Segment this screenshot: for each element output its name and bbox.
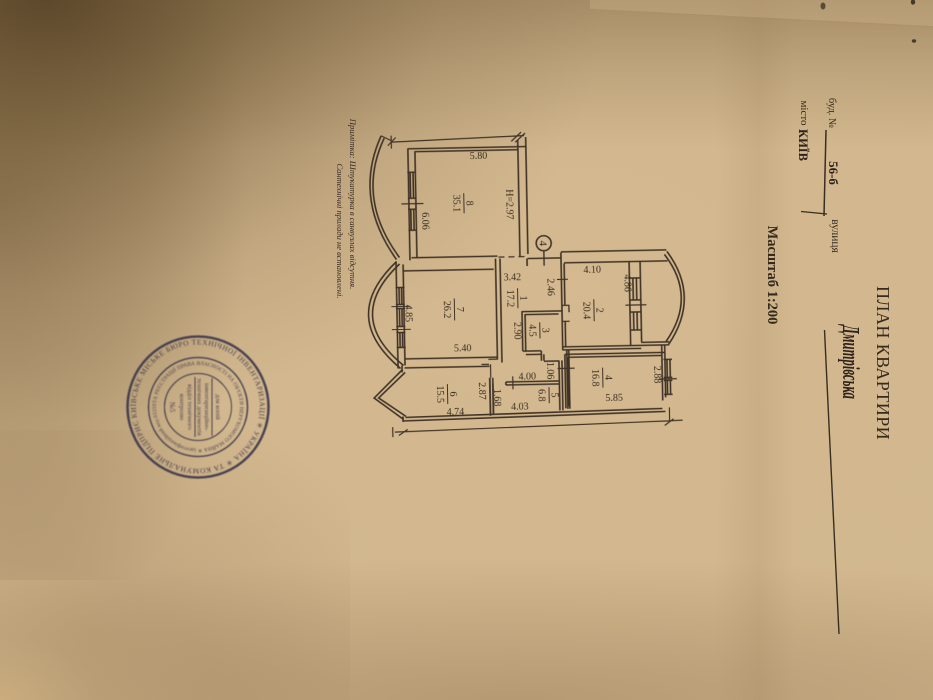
svg-text:7: 7: [454, 307, 465, 312]
svg-text:4.10: 4.10: [583, 265, 601, 276]
svg-text:1.06: 1.06: [544, 362, 555, 380]
svg-text:Сантехнічні прилади не встанов: Сантехнічні прилади не встановлені.: [335, 163, 345, 298]
svg-text:4.03: 4.03: [511, 402, 529, 413]
svg-text:буд. №: буд. №: [826, 98, 837, 128]
svg-text:20.4: 20.4: [580, 302, 591, 320]
svg-text:Н=2.97: Н=2.97: [503, 189, 515, 220]
svg-text:Масштаб 1:200: Масштаб 1:200: [764, 226, 780, 325]
svg-text:4.74: 4.74: [447, 407, 465, 418]
svg-text:8: 8: [463, 201, 474, 206]
svg-text:4.00: 4.00: [518, 371, 536, 382]
svg-text:контролю: контролю: [178, 394, 185, 421]
svg-text:ПЛАН КВАРТИРИ: ПЛАН КВАРТИРИ: [873, 286, 893, 440]
svg-text:вулиця: вулиця: [829, 219, 841, 253]
svg-text:№5: №5: [168, 402, 176, 413]
svg-text:інвентаризаційно-: інвентаризаційно-: [203, 383, 210, 431]
svg-text:5.85: 5.85: [605, 393, 623, 404]
svg-text:3.42: 3.42: [504, 272, 522, 283]
svg-text:1: 1: [517, 296, 528, 301]
svg-text:4: 4: [537, 240, 549, 246]
svg-text:Дмитрівська: Дмитрівська: [837, 324, 863, 399]
svg-text:6.06: 6.06: [419, 212, 430, 230]
svg-text:4.85: 4.85: [402, 304, 413, 322]
svg-text:16.8: 16.8: [589, 369, 600, 387]
svg-text:2.46: 2.46: [544, 278, 555, 296]
svg-text:2: 2: [593, 308, 604, 313]
svg-text:1.68: 1.68: [491, 389, 502, 407]
svg-text:для копій: для копій: [214, 394, 221, 420]
svg-text:відділ технічного: відділ технічного: [186, 384, 193, 430]
svg-text:2.88: 2.88: [651, 366, 662, 384]
svg-text:Примітка: Штукатурка в санвузл: Примітка: Штукатурка в санвузлах відсутн…: [348, 118, 358, 289]
svg-text:6.8: 6.8: [536, 389, 547, 402]
svg-text:КИЇВ: КИЇВ: [796, 129, 810, 161]
svg-text:4.86: 4.86: [621, 274, 632, 292]
svg-text:5.40: 5.40: [454, 343, 472, 354]
svg-text:місто: місто: [798, 100, 810, 126]
svg-text:6: 6: [447, 391, 458, 396]
svg-text:2.87: 2.87: [476, 382, 487, 400]
svg-text:5: 5: [549, 392, 560, 397]
svg-text:56-б: 56-б: [826, 161, 841, 185]
svg-text:15.5: 15.5: [434, 385, 445, 403]
svg-text:17.2: 17.2: [504, 290, 515, 308]
svg-text:35.1: 35.1: [450, 195, 461, 213]
svg-text:3: 3: [539, 328, 550, 333]
svg-text:5.80: 5.80: [470, 151, 488, 162]
svg-text:2.90: 2.90: [511, 322, 522, 340]
svg-text:4: 4: [602, 375, 613, 380]
svg-text:технічних документів: технічних документів: [196, 378, 203, 435]
svg-text:26.2: 26.2: [441, 301, 452, 319]
svg-text:4.5: 4.5: [526, 324, 537, 337]
